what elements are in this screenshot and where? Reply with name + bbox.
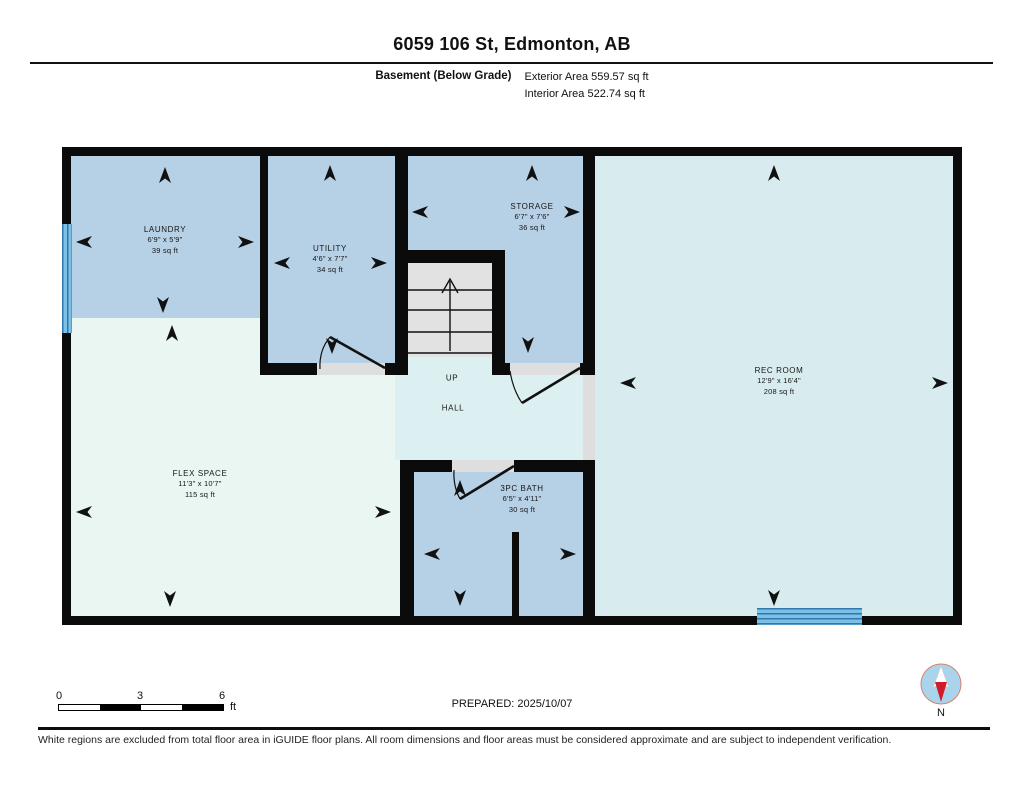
- room-fill-bath: [414, 472, 583, 616]
- label-laundry: LAUNDRY 6'9" x 5'9" 39 sq ft: [144, 224, 186, 256]
- room-fill-hall-b: [395, 375, 583, 460]
- wall-stair-top: [395, 250, 505, 263]
- compass-rose: N: [916, 660, 968, 722]
- label-rec-room: REC ROOM 12'9" x 16'4" 208 sq ft: [755, 365, 804, 397]
- footer-divider: [38, 727, 990, 730]
- room-fill-flex-b: [260, 375, 400, 616]
- room-fill-storage-b: [505, 250, 583, 363]
- label-storage: STORAGE 6'7" x 7'6" 36 sq ft: [510, 201, 553, 233]
- compass-icon: N: [916, 660, 968, 722]
- wall-outer-top: [62, 147, 962, 156]
- area-summary: Exterior Area 559.57 sq ft Interior Area…: [524, 69, 648, 103]
- room-fill-flex-a: [71, 318, 260, 616]
- prepared-date: PREPARED: 2025/10/07: [0, 698, 1024, 710]
- wall-outer-left-a: [62, 147, 71, 224]
- compass-north-label: N: [937, 707, 945, 719]
- window-laundry: [62, 224, 72, 333]
- label-hall: HALL: [442, 404, 464, 413]
- room-fill-hall-a: [408, 357, 492, 375]
- interior-area: Interior Area 522.74 sq ft: [524, 86, 648, 103]
- room-fill-storage-a: [408, 156, 583, 250]
- wall-laundry-utility: [260, 147, 268, 375]
- page-title: 6059 106 St, Edmonton, AB: [0, 34, 1024, 55]
- wall-bath-partition: [512, 532, 519, 616]
- threshold-storage-door: [510, 363, 580, 375]
- wall-utility-bottom-a: [260, 363, 317, 375]
- threshold-utility-door: [317, 363, 385, 375]
- staircase-fill: [408, 263, 492, 357]
- floor-plan: LAUNDRY 6'9" x 5'9" 39 sq ft UTILITY 4'6…: [62, 147, 962, 625]
- wall-outer-bottom-b: [862, 616, 962, 625]
- floor-label: Basement (Below Grade): [375, 69, 511, 84]
- wall-storage-bottom-a: [492, 363, 510, 375]
- exterior-area: Exterior Area 559.57 sq ft: [524, 69, 648, 86]
- floor-plan-page: 6059 106 St, Edmonton, AB Basement (Belo…: [0, 0, 1024, 791]
- wall-hall-rec-top: [583, 147, 595, 375]
- label-utility: UTILITY 4'6" x 7'7" 34 sq ft: [313, 243, 348, 275]
- wall-bath-top-b: [514, 460, 595, 472]
- label-up: UP: [446, 374, 458, 383]
- wall-utility-bottom-b: [385, 363, 408, 375]
- wall-outer-bottom-a: [62, 616, 757, 625]
- disclaimer-text: White regions are excluded from total fl…: [38, 734, 998, 746]
- threshold-bath-door: [452, 460, 514, 472]
- header-divider: [30, 62, 993, 64]
- threshold-hall-opening: [583, 375, 595, 460]
- label-bath: 3PC BATH 6'5" x 4'11" 30 sq ft: [500, 483, 543, 515]
- wall-outer-left-b: [62, 333, 71, 625]
- plan-subheader: Basement (Below Grade) Exterior Area 559…: [0, 69, 1024, 103]
- label-flex-space: FLEX SPACE 11'3" x 10'7" 115 sq ft: [173, 468, 228, 500]
- window-rec-room: [757, 608, 862, 625]
- wall-hall-rec-bottom: [583, 460, 595, 625]
- wall-outer-right: [953, 147, 962, 625]
- wall-stair-right: [492, 263, 505, 375]
- wall-bath-left: [400, 460, 414, 616]
